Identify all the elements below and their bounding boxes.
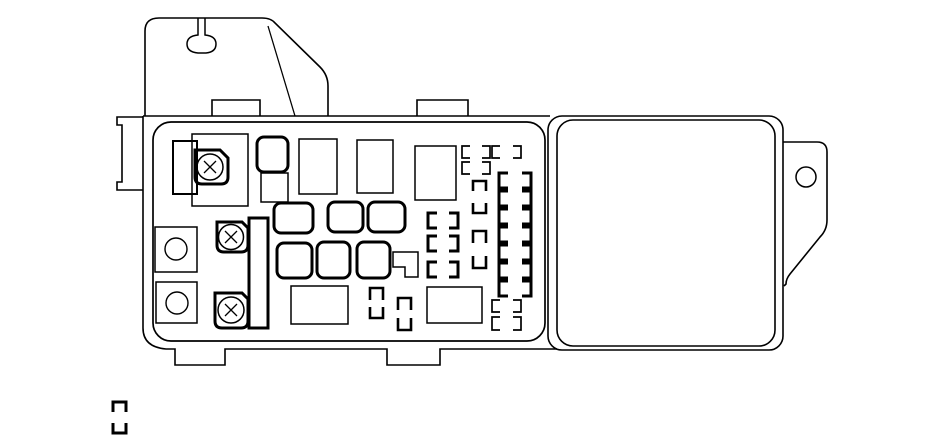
cover-tab-hole [796,167,816,187]
terminal-hole-1 [165,238,187,260]
fuse-slot-rc2 [499,191,531,206]
fuse-slot-p1 [462,146,490,158]
fuse-b3 [357,242,390,278]
screw-cross-1 [204,161,216,173]
fuse-slot-v3 [370,288,383,318]
fuse-slot-p5 [492,317,521,330]
relay-rect-f [299,139,337,194]
housing-top-tab-right [417,100,468,116]
flag-connector [393,252,418,277]
fuse-slot-l1 [428,213,458,228]
relay-rect-b [192,134,248,206]
fuse-slot-l2 [428,236,458,251]
housing-left-bottom-edge [143,116,557,365]
fuse-slot-v2 [473,231,486,268]
fuse-slot-external [113,402,126,433]
relay-rect-a [173,141,197,194]
relay-rect-r2 [427,287,482,323]
fuse-slot-rc7 [499,281,531,296]
screw-cross-2 [225,231,237,243]
relay-rect-g [357,140,393,193]
fuse-box-diagram-page [0,0,950,447]
fuse-square-d [257,137,288,172]
fuse-b2 [317,242,350,278]
cover-outer [548,116,783,350]
relay-rect-h [415,146,456,200]
terminal-hole-2 [166,292,188,314]
fuse-slot-p4 [492,300,521,312]
fuse-a2 [328,202,363,232]
bracket-keyhole-slot [187,18,216,53]
fuse-slot-rc4 [499,227,531,242]
terminal-square-2 [156,282,197,323]
fuse-box-diagram [0,0,950,447]
busbar-vertical [249,218,268,328]
fuse-a3 [368,202,405,232]
fuse-slot-rc5 [499,245,531,260]
terminal-square-1 [155,227,197,272]
relay-rect-r1 [291,286,348,324]
fuse-slot-v1 [473,181,486,213]
fuse-slot-p2 [492,146,521,158]
fuse-a1 [274,203,313,233]
cover-inner [557,120,775,346]
fuse-slot-rc3 [499,209,531,224]
fuse-slot-rc1 [499,173,531,188]
fuse-slot-l3 [428,262,458,277]
fuse-slot-p3 [462,162,490,174]
fuse-b1 [277,243,312,278]
screw-cross-3 [225,304,237,316]
fuse-slot-rc6 [499,263,531,278]
fuse-slot-v4 [398,298,411,330]
left-mount-bracket [117,117,143,190]
cover-mount-tab [783,142,827,286]
housing-top-tab-left [212,100,260,116]
mounting-bracket-outline [145,18,328,116]
fuse-square-e [261,173,288,202]
